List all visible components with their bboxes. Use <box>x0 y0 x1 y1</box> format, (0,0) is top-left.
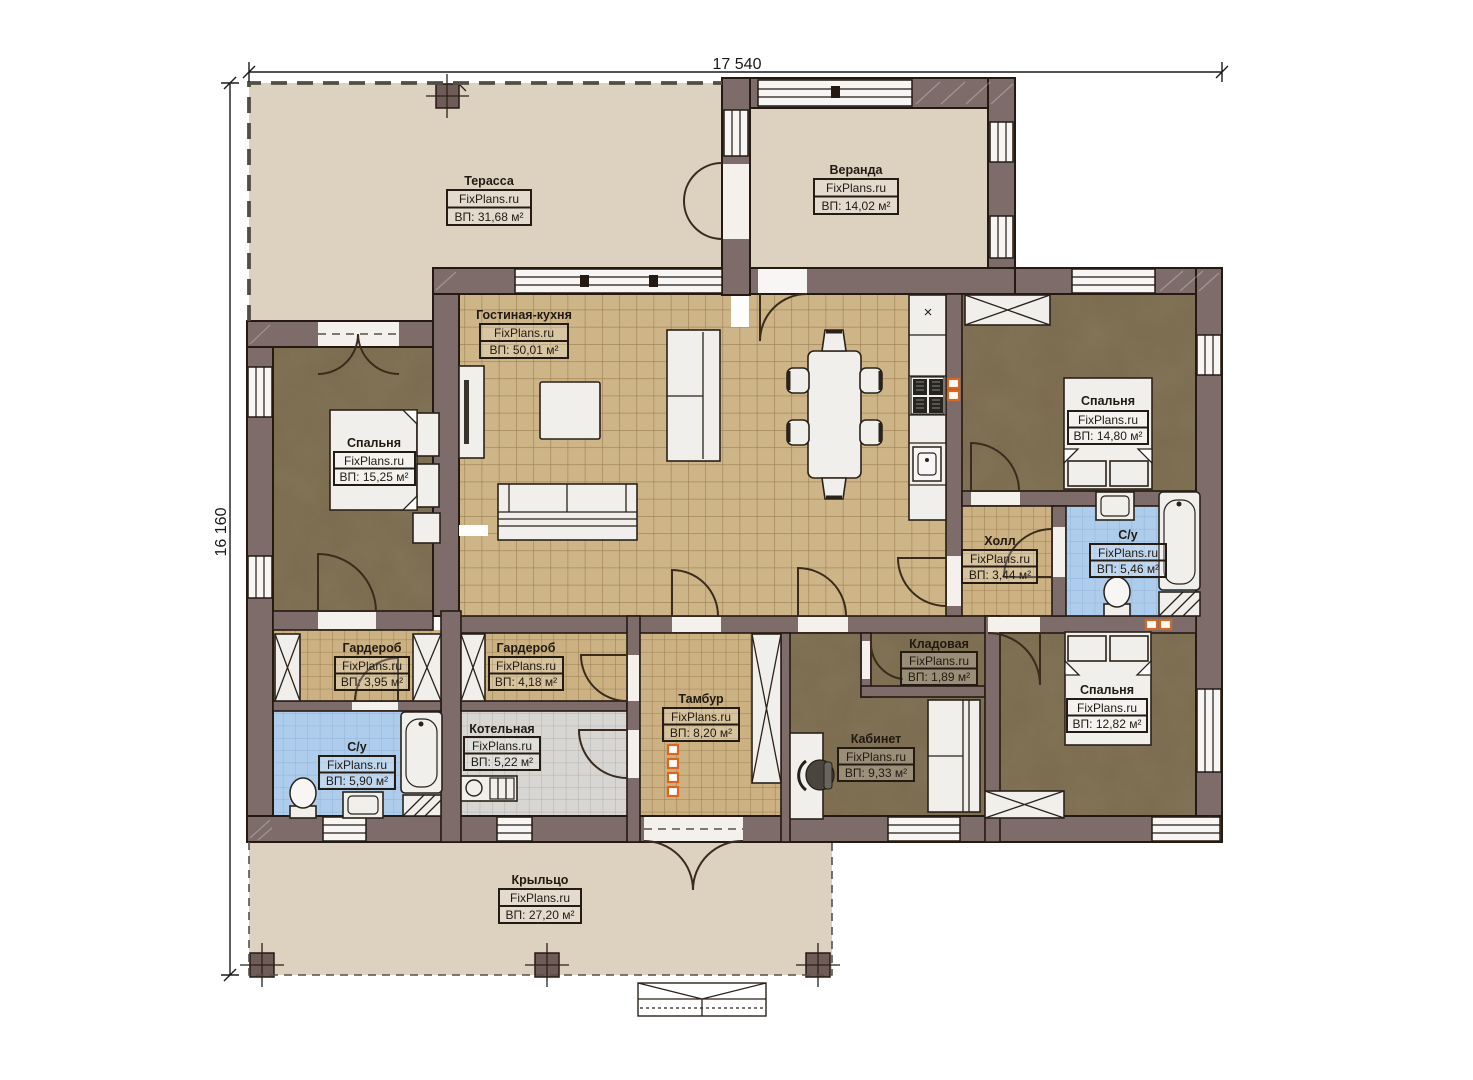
svg-text:16 160: 16 160 <box>213 507 230 556</box>
svg-text:ВП: 5,46 м²: ВП: 5,46 м² <box>1097 562 1159 576</box>
svg-text:ВП: 15,25 м²: ВП: 15,25 м² <box>340 470 409 484</box>
svg-text:ВП: 3,95 м²: ВП: 3,95 м² <box>341 675 403 689</box>
svg-text:FixPlans.ru: FixPlans.ru <box>909 654 969 668</box>
svg-text:Крыльцо: Крыльцо <box>512 873 569 887</box>
svg-text:ВП: 5,22 м²: ВП: 5,22 м² <box>471 755 533 769</box>
svg-text:ВП: 9,33 м²: ВП: 9,33 м² <box>845 766 907 780</box>
svg-text:Гардероб: Гардероб <box>342 641 401 655</box>
svg-text:ВП: 8,20 м²: ВП: 8,20 м² <box>670 726 732 740</box>
svg-text:FixPlans.ru: FixPlans.ru <box>1078 413 1138 427</box>
svg-text:Спальня: Спальня <box>1081 394 1135 408</box>
svg-text:С/у: С/у <box>347 740 367 754</box>
svg-text:ВП: 14,80 м²: ВП: 14,80 м² <box>1074 429 1143 443</box>
svg-text:ВП: 4,18 м²: ВП: 4,18 м² <box>495 675 557 689</box>
svg-text:FixPlans.ru: FixPlans.ru <box>826 181 886 195</box>
svg-text:FixPlans.ru: FixPlans.ru <box>671 710 731 724</box>
svg-text:С/у: С/у <box>1118 528 1138 542</box>
svg-text:FixPlans.ru: FixPlans.ru <box>1098 546 1158 560</box>
svg-text:FixPlans.ru: FixPlans.ru <box>510 891 570 905</box>
svg-text:ВП: 1,89 м²: ВП: 1,89 м² <box>908 670 970 684</box>
svg-text:Котельная: Котельная <box>469 722 534 736</box>
svg-text:Веранда: Веранда <box>829 163 883 177</box>
svg-text:ВП: 3,44 м²: ВП: 3,44 м² <box>969 568 1031 582</box>
svg-text:Тамбур: Тамбур <box>678 692 724 706</box>
svg-text:FixPlans.ru: FixPlans.ru <box>472 739 532 753</box>
svg-text:×: × <box>924 304 933 321</box>
svg-text:ВП: 12,82 м²: ВП: 12,82 м² <box>1073 717 1142 731</box>
svg-text:Терасса: Терасса <box>464 174 515 188</box>
svg-text:Гостиная-кухня: Гостиная-кухня <box>476 308 572 322</box>
svg-text:ВП: 31,68 м²: ВП: 31,68 м² <box>455 210 524 224</box>
svg-text:ВП: 27,20 м²: ВП: 27,20 м² <box>506 908 575 922</box>
svg-text:Гардероб: Гардероб <box>496 641 555 655</box>
svg-text:Спальня: Спальня <box>1080 683 1134 697</box>
svg-text:17 540: 17 540 <box>713 56 762 73</box>
svg-text:ВП: 50,01 м²: ВП: 50,01 м² <box>490 343 559 357</box>
svg-text:FixPlans.ru: FixPlans.ru <box>344 454 404 468</box>
svg-text:Кабинет: Кабинет <box>851 732 902 746</box>
svg-text:ВП: 14,02 м²: ВП: 14,02 м² <box>822 199 891 213</box>
svg-text:FixPlans.ru: FixPlans.ru <box>1077 701 1137 715</box>
svg-text:FixPlans.ru: FixPlans.ru <box>970 552 1030 566</box>
svg-text:FixPlans.ru: FixPlans.ru <box>496 659 556 673</box>
svg-text:FixPlans.ru: FixPlans.ru <box>846 750 906 764</box>
svg-text:ВП: 5,90 м²: ВП: 5,90 м² <box>326 774 388 788</box>
svg-text:FixPlans.ru: FixPlans.ru <box>494 326 554 340</box>
svg-text:FixPlans.ru: FixPlans.ru <box>327 758 387 772</box>
svg-text:FixPlans.ru: FixPlans.ru <box>342 659 402 673</box>
svg-text:Кладовая: Кладовая <box>909 637 969 651</box>
svg-text:Холл: Холл <box>984 534 1015 548</box>
svg-text:Спальня: Спальня <box>347 436 401 450</box>
svg-text:FixPlans.ru: FixPlans.ru <box>459 192 519 206</box>
